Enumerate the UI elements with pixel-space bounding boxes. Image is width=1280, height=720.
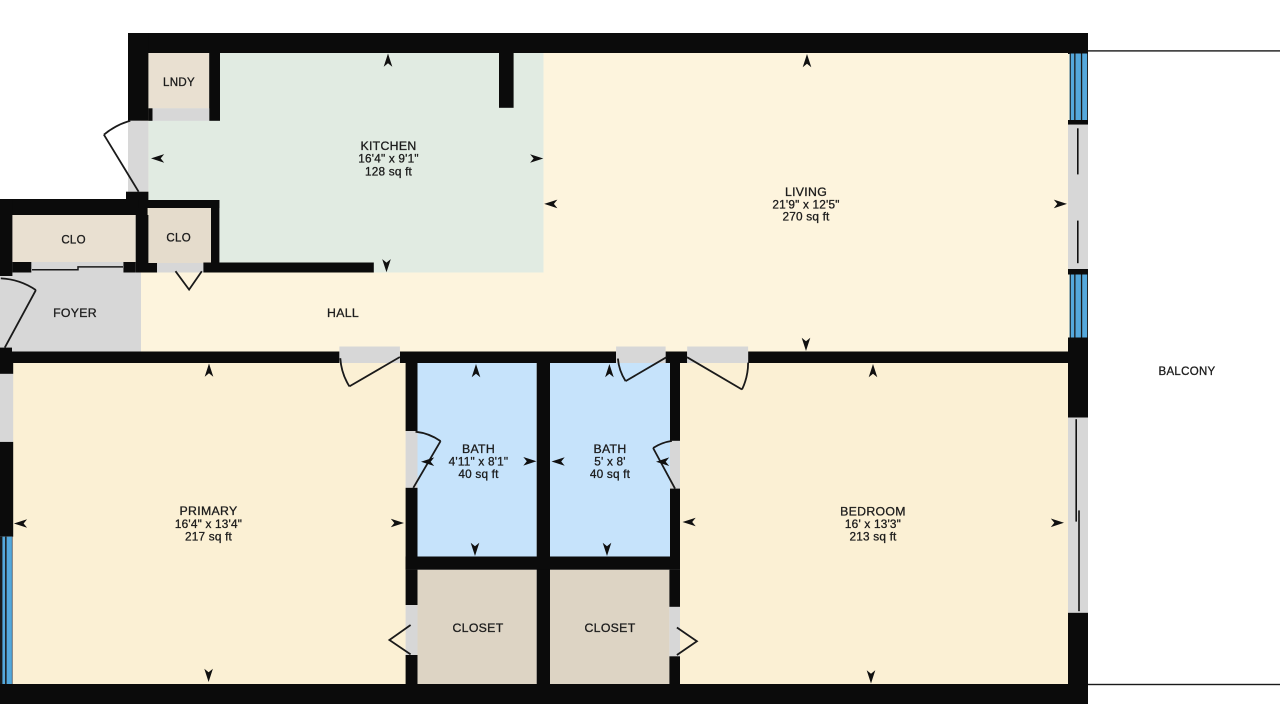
svg-text:213 sq ft: 213 sq ft: [849, 530, 897, 544]
svg-text:PRIMARY: PRIMARY: [180, 504, 238, 518]
svg-text:LNDY: LNDY: [163, 77, 195, 89]
svg-text:CLO: CLO: [61, 235, 86, 247]
svg-text:40 sq ft: 40 sq ft: [458, 467, 499, 481]
svg-text:16'4" x 9'1": 16'4" x 9'1": [358, 152, 419, 166]
svg-text:40 sq ft: 40 sq ft: [590, 467, 631, 481]
svg-text:CLO: CLO: [166, 233, 191, 245]
svg-text:217 sq ft: 217 sq ft: [185, 530, 233, 544]
svg-text:BALCONY: BALCONY: [1158, 366, 1215, 378]
svg-text:CLOSET: CLOSET: [453, 621, 504, 635]
svg-text:HALL: HALL: [327, 306, 359, 320]
svg-text:270 sq ft: 270 sq ft: [782, 210, 830, 224]
svg-text:FOYER: FOYER: [53, 306, 97, 320]
svg-text:CLOSET: CLOSET: [585, 621, 636, 635]
svg-text:128 sq ft: 128 sq ft: [365, 165, 413, 179]
